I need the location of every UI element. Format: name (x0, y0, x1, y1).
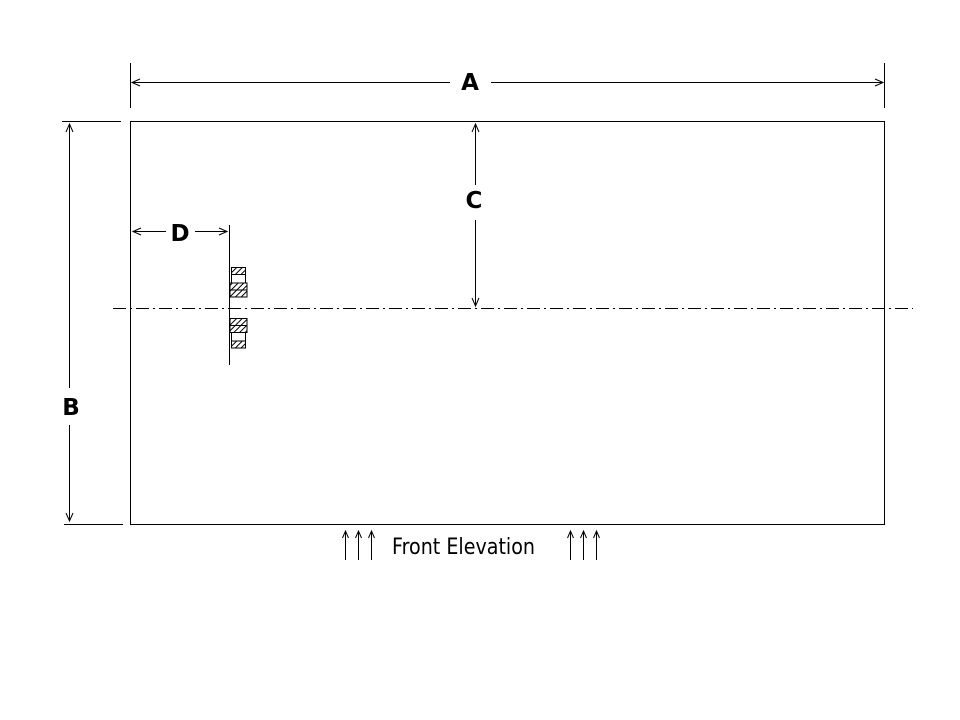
hatched-fitting (230, 268, 247, 349)
fitting-plain-segment (232, 333, 246, 342)
dim-d-label: D (170, 221, 189, 247)
dim-b-label: B (62, 395, 80, 421)
dim-c-label: C (466, 188, 483, 214)
dimension-d: D (133, 221, 230, 365)
fitting-hatch-segment (232, 268, 246, 275)
dimension-b: B (62, 122, 123, 525)
caption: Front Elevation (343, 531, 600, 560)
fitting-hatch-segment (230, 319, 247, 326)
caption-text: Front Elevation (392, 535, 535, 560)
dimension-a: A (131, 63, 885, 108)
fitting-hatch-segment (230, 326, 247, 333)
elevation-drawing-canvas: A B C D (0, 0, 960, 720)
fitting-hatch-segment (232, 341, 246, 348)
drawing-area: A B C D (0, 0, 960, 720)
dim-a-label: A (461, 70, 479, 96)
caption-arrows-left (343, 531, 375, 560)
fitting-plain-segment (232, 275, 246, 284)
caption-arrows-right (568, 531, 600, 560)
fitting-hatch-segment (230, 290, 247, 297)
fitting-hatch-segment (230, 283, 247, 290)
dimension-c: C (466, 124, 483, 306)
